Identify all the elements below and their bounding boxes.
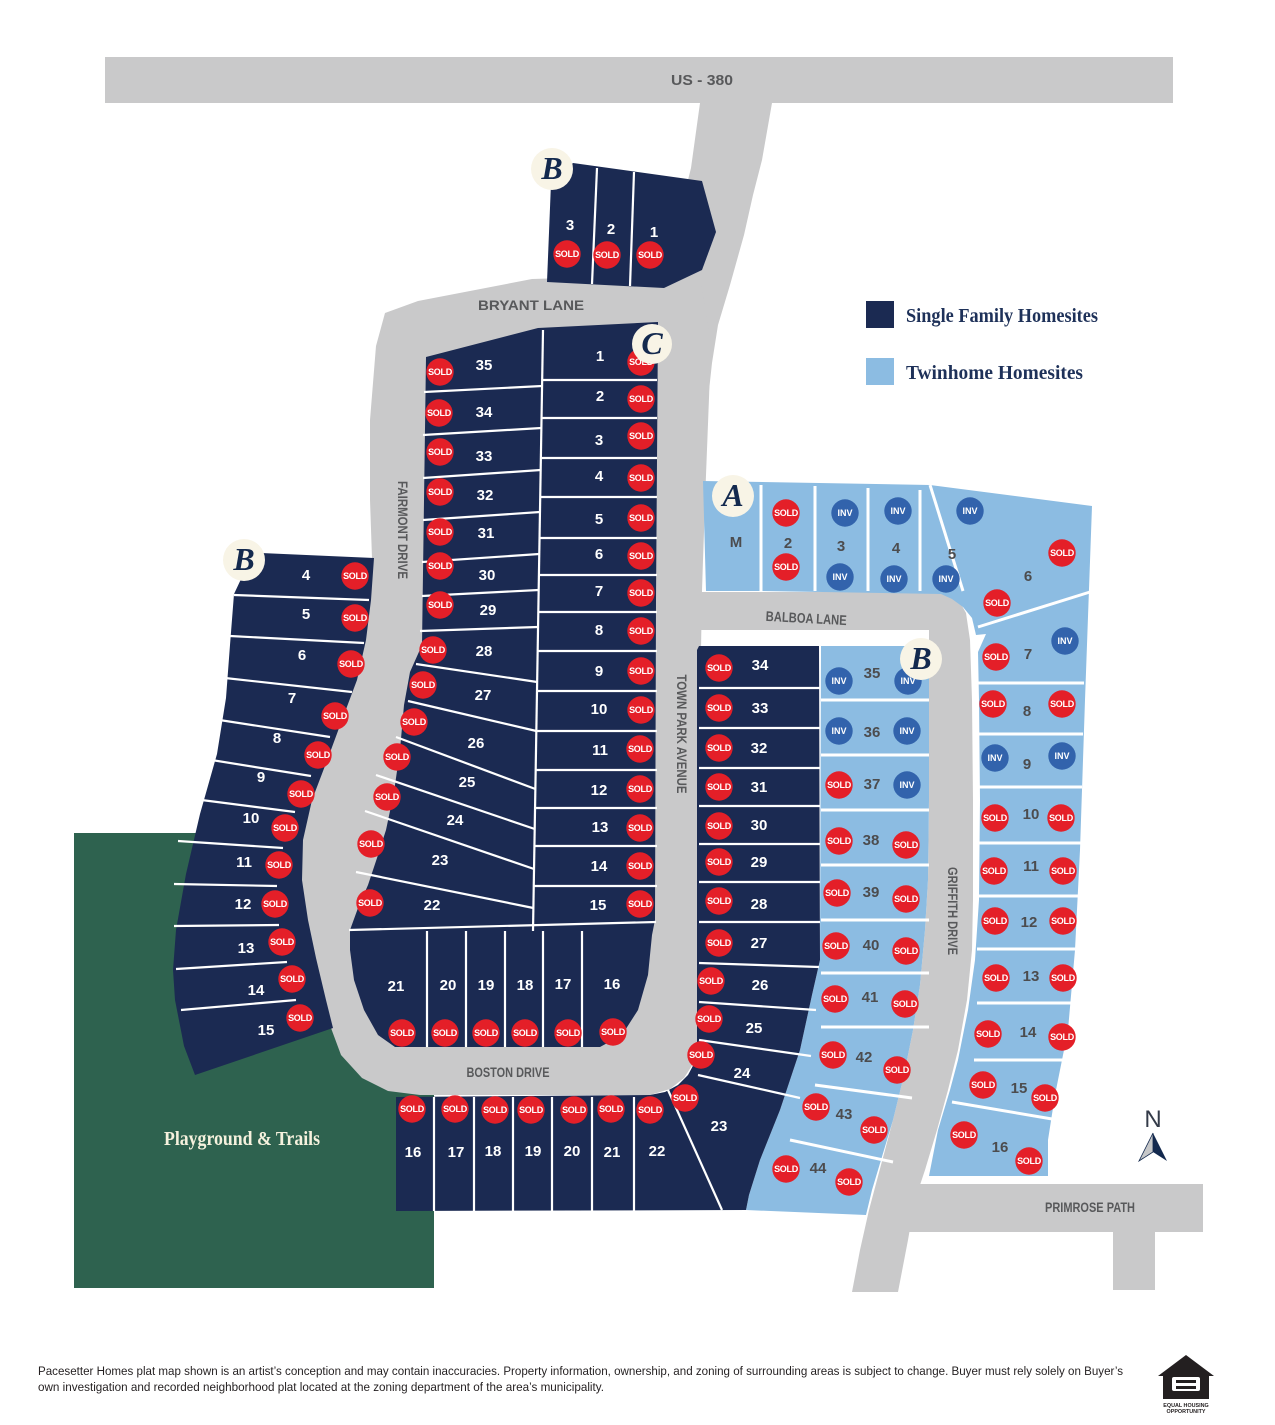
svg-text:SOLD: SOLD bbox=[629, 431, 654, 441]
svg-text:SOLD: SOLD bbox=[638, 250, 663, 260]
svg-text:22: 22 bbox=[424, 897, 441, 914]
svg-text:SOLD: SOLD bbox=[699, 976, 724, 986]
svg-text:SOLD: SOLD bbox=[673, 1093, 698, 1103]
svg-text:4: 4 bbox=[892, 540, 901, 557]
svg-text:35: 35 bbox=[864, 665, 881, 682]
svg-text:Single Family Homesites: Single Family Homesites bbox=[906, 305, 1098, 327]
svg-text:23: 23 bbox=[711, 1118, 728, 1135]
svg-text:SOLD: SOLD bbox=[343, 613, 368, 623]
svg-text:35: 35 bbox=[476, 357, 493, 374]
svg-text:SOLD: SOLD bbox=[339, 659, 364, 669]
svg-text:SOLD: SOLD bbox=[894, 946, 919, 956]
svg-text:SOLD: SOLD bbox=[707, 703, 732, 713]
svg-text:5: 5 bbox=[948, 546, 956, 563]
svg-text:30: 30 bbox=[751, 817, 768, 834]
svg-text:SOLD: SOLD bbox=[983, 916, 1008, 926]
svg-text:25: 25 bbox=[459, 774, 476, 791]
svg-text:SOLD: SOLD bbox=[638, 1105, 663, 1115]
svg-text:SOLD: SOLD bbox=[428, 367, 453, 377]
svg-text:SOLD: SOLD bbox=[562, 1105, 587, 1115]
svg-text:INV: INV bbox=[899, 726, 914, 736]
svg-text:SOLD: SOLD bbox=[823, 994, 848, 1004]
svg-text:SOLD: SOLD bbox=[984, 973, 1009, 983]
svg-text:SOLD: SOLD bbox=[894, 840, 919, 850]
svg-text:30: 30 bbox=[479, 567, 496, 584]
svg-text:16: 16 bbox=[992, 1139, 1009, 1156]
svg-text:B: B bbox=[232, 541, 254, 577]
svg-text:1: 1 bbox=[596, 348, 604, 365]
svg-text:24: 24 bbox=[447, 812, 464, 829]
svg-text:34: 34 bbox=[752, 657, 769, 674]
svg-text:19: 19 bbox=[478, 977, 495, 994]
svg-text:4: 4 bbox=[595, 468, 604, 485]
svg-text:SOLD: SOLD bbox=[375, 792, 400, 802]
svg-text:SOLD: SOLD bbox=[824, 941, 849, 951]
svg-text:SOLD: SOLD bbox=[983, 813, 1008, 823]
svg-text:18: 18 bbox=[485, 1143, 502, 1160]
svg-text:SOLD: SOLD bbox=[1050, 699, 1075, 709]
svg-text:17: 17 bbox=[555, 976, 572, 993]
svg-text:SOLD: SOLD bbox=[323, 711, 348, 721]
svg-text:GRIFFITH DRIVE: GRIFFITH DRIVE bbox=[945, 867, 961, 955]
svg-text:12: 12 bbox=[591, 782, 608, 799]
svg-text:22: 22 bbox=[649, 1143, 666, 1160]
svg-text:INV: INV bbox=[899, 780, 914, 790]
svg-text:SOLD: SOLD bbox=[629, 551, 654, 561]
svg-text:9: 9 bbox=[1023, 756, 1031, 773]
svg-text:15: 15 bbox=[590, 897, 607, 914]
svg-text:11: 11 bbox=[1023, 858, 1039, 875]
svg-text:9: 9 bbox=[595, 663, 603, 680]
svg-text:27: 27 bbox=[475, 687, 492, 704]
svg-text:21: 21 bbox=[388, 978, 405, 995]
svg-text:8: 8 bbox=[273, 730, 281, 747]
svg-text:SOLD: SOLD bbox=[629, 513, 654, 523]
svg-text:40: 40 bbox=[863, 937, 880, 954]
svg-text:SOLD: SOLD bbox=[629, 705, 654, 715]
svg-text:FAIRMONT DRIVE: FAIRMONT DRIVE bbox=[395, 481, 411, 579]
svg-text:25: 25 bbox=[746, 1020, 763, 1037]
svg-text:SOLD: SOLD bbox=[595, 250, 620, 260]
svg-text:INV: INV bbox=[962, 506, 977, 516]
svg-text:11: 11 bbox=[592, 742, 608, 759]
svg-text:SOLD: SOLD bbox=[428, 561, 453, 571]
svg-text:INV: INV bbox=[1054, 751, 1069, 761]
svg-text:SOLD: SOLD bbox=[359, 839, 384, 849]
svg-text:SOLD: SOLD bbox=[1051, 916, 1076, 926]
svg-text:SOLD: SOLD bbox=[689, 1050, 714, 1060]
svg-text:B: B bbox=[909, 640, 931, 676]
svg-text:SOLD: SOLD bbox=[428, 487, 453, 497]
svg-text:BRYANT LANE: BRYANT LANE bbox=[478, 297, 584, 313]
svg-text:Playground & Trails: Playground & Trails bbox=[164, 1128, 320, 1150]
svg-text:N: N bbox=[1144, 1106, 1161, 1133]
svg-text:SOLD: SOLD bbox=[707, 896, 732, 906]
svg-text:SOLD: SOLD bbox=[427, 408, 452, 418]
svg-text:SOLD: SOLD bbox=[697, 1014, 722, 1024]
svg-text:Pacesetter Homes plat map show: Pacesetter Homes plat map shown is an ar… bbox=[38, 1364, 1123, 1378]
svg-text:SOLD: SOLD bbox=[289, 789, 314, 799]
svg-text:27: 27 bbox=[751, 935, 768, 952]
svg-text:SOLD: SOLD bbox=[280, 974, 305, 984]
svg-text:SOLD: SOLD bbox=[411, 680, 436, 690]
svg-text:SOLD: SOLD bbox=[385, 752, 410, 762]
svg-text:SOLD: SOLD bbox=[306, 750, 331, 760]
svg-text:8: 8 bbox=[595, 622, 603, 639]
svg-text:10: 10 bbox=[591, 701, 608, 718]
svg-text:SOLD: SOLD bbox=[825, 888, 850, 898]
svg-text:SOLD: SOLD bbox=[985, 598, 1010, 608]
svg-text:Twinhome Homesites: Twinhome Homesites bbox=[906, 362, 1083, 384]
svg-text:TOWN PARK AVENUE: TOWN PARK AVENUE bbox=[674, 675, 690, 794]
svg-text:14: 14 bbox=[248, 982, 265, 999]
svg-text:SOLD: SOLD bbox=[629, 588, 654, 598]
svg-text:C: C bbox=[641, 325, 663, 361]
svg-text:20: 20 bbox=[564, 1143, 581, 1160]
svg-text:SOLD: SOLD bbox=[629, 626, 654, 636]
svg-text:INV: INV bbox=[837, 508, 852, 518]
svg-text:SOLD: SOLD bbox=[707, 782, 732, 792]
svg-text:SOLD: SOLD bbox=[1033, 1093, 1058, 1103]
svg-text:SOLD: SOLD bbox=[984, 652, 1009, 662]
svg-text:SOLD: SOLD bbox=[707, 857, 732, 867]
svg-text:SOLD: SOLD bbox=[628, 861, 653, 871]
svg-text:7: 7 bbox=[288, 690, 296, 707]
svg-text:SOLD: SOLD bbox=[629, 666, 654, 676]
svg-text:SOLD: SOLD bbox=[628, 744, 653, 754]
svg-text:11: 11 bbox=[236, 854, 252, 871]
svg-text:16: 16 bbox=[604, 976, 621, 993]
svg-text:SOLD: SOLD bbox=[556, 1028, 581, 1038]
svg-text:SOLD: SOLD bbox=[707, 938, 732, 948]
svg-text:PRIMROSE PATH: PRIMROSE PATH bbox=[1045, 1199, 1135, 1215]
svg-text:4: 4 bbox=[302, 567, 311, 584]
svg-text:3: 3 bbox=[595, 432, 603, 449]
svg-text:INV: INV bbox=[831, 676, 846, 686]
svg-text:SOLD: SOLD bbox=[981, 699, 1006, 709]
svg-text:INV: INV bbox=[831, 726, 846, 736]
svg-text:33: 33 bbox=[476, 448, 493, 465]
svg-text:33: 33 bbox=[752, 700, 769, 717]
svg-text:SOLD: SOLD bbox=[1051, 973, 1076, 983]
svg-text:SOLD: SOLD bbox=[443, 1104, 468, 1114]
svg-text:US - 380: US - 380 bbox=[671, 72, 733, 89]
svg-text:2: 2 bbox=[596, 388, 604, 405]
svg-text:INV: INV bbox=[1057, 636, 1072, 646]
svg-text:own investigation and recorded: own investigation and recorded neighborh… bbox=[38, 1380, 604, 1394]
svg-text:2: 2 bbox=[607, 221, 615, 238]
svg-text:SOLD: SOLD bbox=[1051, 866, 1076, 876]
svg-text:31: 31 bbox=[751, 779, 768, 796]
svg-text:1: 1 bbox=[650, 224, 658, 241]
svg-text:24: 24 bbox=[734, 1065, 751, 1082]
svg-text:10: 10 bbox=[1023, 806, 1040, 823]
svg-text:SOLD: SOLD bbox=[885, 1065, 910, 1075]
svg-text:37: 37 bbox=[864, 776, 881, 793]
svg-text:SOLD: SOLD bbox=[599, 1104, 624, 1114]
svg-text:18: 18 bbox=[517, 977, 534, 994]
svg-text:29: 29 bbox=[480, 602, 497, 619]
svg-text:3: 3 bbox=[566, 217, 574, 234]
svg-text:39: 39 bbox=[863, 884, 880, 901]
svg-text:SOLD: SOLD bbox=[555, 249, 580, 259]
svg-text:19: 19 bbox=[525, 1143, 542, 1160]
svg-text:SOLD: SOLD bbox=[428, 527, 453, 537]
svg-text:SOLD: SOLD bbox=[862, 1125, 887, 1135]
svg-text:BOSTON DRIVE: BOSTON DRIVE bbox=[467, 1064, 550, 1080]
svg-text:7: 7 bbox=[595, 583, 603, 600]
svg-text:SOLD: SOLD bbox=[601, 1027, 626, 1037]
svg-text:INV: INV bbox=[890, 506, 905, 516]
svg-text:SOLD: SOLD bbox=[774, 1164, 799, 1174]
svg-text:SOLD: SOLD bbox=[774, 508, 799, 518]
svg-text:SOLD: SOLD bbox=[894, 894, 919, 904]
svg-text:SOLD: SOLD bbox=[628, 823, 653, 833]
svg-text:8: 8 bbox=[1023, 703, 1031, 720]
svg-text:14: 14 bbox=[591, 858, 608, 875]
svg-text:41: 41 bbox=[862, 989, 879, 1006]
svg-text:16: 16 bbox=[405, 1144, 422, 1161]
svg-text:36: 36 bbox=[864, 724, 881, 741]
svg-text:SOLD: SOLD bbox=[976, 1029, 1001, 1039]
svg-text:INV: INV bbox=[987, 753, 1002, 763]
svg-text:31: 31 bbox=[478, 525, 495, 542]
svg-text:SOLD: SOLD bbox=[390, 1028, 415, 1038]
svg-text:SOLD: SOLD bbox=[827, 780, 852, 790]
svg-text:SOLD: SOLD bbox=[629, 473, 654, 483]
svg-text:INV: INV bbox=[832, 572, 847, 582]
svg-text:32: 32 bbox=[751, 740, 768, 757]
svg-text:13: 13 bbox=[238, 940, 255, 957]
svg-text:SOLD: SOLD bbox=[774, 562, 799, 572]
svg-text:26: 26 bbox=[468, 735, 485, 752]
svg-text:34: 34 bbox=[476, 404, 493, 421]
svg-text:SOLD: SOLD bbox=[1050, 548, 1075, 558]
svg-text:13: 13 bbox=[1023, 968, 1040, 985]
svg-text:SOLD: SOLD bbox=[433, 1028, 458, 1038]
svg-text:6: 6 bbox=[1024, 568, 1032, 585]
svg-text:SOLD: SOLD bbox=[428, 600, 453, 610]
svg-text:10: 10 bbox=[243, 810, 260, 827]
svg-text:SOLD: SOLD bbox=[827, 836, 852, 846]
svg-text:SOLD: SOLD bbox=[267, 860, 292, 870]
svg-text:3: 3 bbox=[837, 538, 845, 555]
svg-text:SOLD: SOLD bbox=[1017, 1156, 1042, 1166]
svg-text:21: 21 bbox=[604, 1144, 621, 1161]
svg-text:SOLD: SOLD bbox=[982, 866, 1007, 876]
svg-text:SOLD: SOLD bbox=[400, 1104, 425, 1114]
svg-text:B: B bbox=[540, 150, 562, 186]
svg-text:6: 6 bbox=[595, 546, 603, 563]
svg-text:SOLD: SOLD bbox=[270, 937, 295, 947]
svg-text:42: 42 bbox=[856, 1049, 873, 1066]
svg-text:12: 12 bbox=[235, 896, 252, 913]
svg-text:SOLD: SOLD bbox=[421, 645, 446, 655]
svg-text:6: 6 bbox=[298, 647, 306, 664]
svg-text:SOLD: SOLD bbox=[263, 899, 288, 909]
svg-text:20: 20 bbox=[440, 977, 457, 994]
svg-text:SOLD: SOLD bbox=[971, 1080, 996, 1090]
svg-text:23: 23 bbox=[432, 852, 449, 869]
svg-text:17: 17 bbox=[448, 1144, 465, 1161]
svg-text:5: 5 bbox=[302, 606, 310, 623]
svg-text:SOLD: SOLD bbox=[707, 821, 732, 831]
svg-text:SOLD: SOLD bbox=[358, 898, 383, 908]
svg-text:28: 28 bbox=[476, 643, 493, 660]
svg-text:29: 29 bbox=[751, 854, 768, 871]
svg-text:SOLD: SOLD bbox=[519, 1105, 544, 1115]
svg-text:SOLD: SOLD bbox=[288, 1013, 313, 1023]
svg-text:A: A bbox=[720, 477, 743, 513]
svg-text:SOLD: SOLD bbox=[402, 717, 427, 727]
svg-text:SOLD: SOLD bbox=[821, 1050, 846, 1060]
svg-text:SOLD: SOLD bbox=[428, 447, 453, 457]
svg-text:28: 28 bbox=[751, 896, 768, 913]
svg-text:15: 15 bbox=[258, 1022, 275, 1039]
svg-text:15: 15 bbox=[1011, 1080, 1028, 1097]
svg-text:SOLD: SOLD bbox=[837, 1177, 862, 1187]
svg-text:M: M bbox=[730, 534, 743, 551]
svg-text:SOLD: SOLD bbox=[343, 571, 368, 581]
svg-text:7: 7 bbox=[1024, 646, 1032, 663]
svg-text:SOLD: SOLD bbox=[707, 743, 732, 753]
svg-text:SOLD: SOLD bbox=[629, 394, 654, 404]
svg-text:43: 43 bbox=[836, 1106, 853, 1123]
svg-text:12: 12 bbox=[1021, 914, 1038, 931]
svg-text:2: 2 bbox=[784, 535, 792, 552]
svg-text:32: 32 bbox=[477, 487, 494, 504]
svg-text:SOLD: SOLD bbox=[474, 1028, 499, 1038]
svg-text:9: 9 bbox=[257, 769, 265, 786]
svg-text:SOLD: SOLD bbox=[273, 823, 298, 833]
svg-text:SOLD: SOLD bbox=[893, 999, 918, 1009]
svg-text:INV: INV bbox=[938, 574, 953, 584]
svg-text:SOLD: SOLD bbox=[628, 899, 653, 909]
svg-text:44: 44 bbox=[810, 1160, 827, 1177]
svg-text:OPPORTUNITY: OPPORTUNITY bbox=[1167, 1409, 1206, 1415]
svg-text:14: 14 bbox=[1020, 1024, 1037, 1041]
svg-text:SOLD: SOLD bbox=[804, 1102, 829, 1112]
svg-text:SOLD: SOLD bbox=[707, 663, 732, 673]
svg-text:SOLD: SOLD bbox=[628, 784, 653, 794]
svg-text:5: 5 bbox=[595, 511, 603, 528]
svg-text:26: 26 bbox=[752, 977, 769, 994]
svg-text:INV: INV bbox=[886, 574, 901, 584]
svg-text:SOLD: SOLD bbox=[513, 1028, 538, 1038]
svg-text:SOLD: SOLD bbox=[952, 1130, 977, 1140]
svg-text:SOLD: SOLD bbox=[483, 1105, 508, 1115]
svg-text:13: 13 bbox=[592, 819, 609, 836]
svg-text:38: 38 bbox=[863, 832, 880, 849]
svg-text:SOLD: SOLD bbox=[1050, 1032, 1075, 1042]
svg-text:SOLD: SOLD bbox=[1049, 813, 1074, 823]
